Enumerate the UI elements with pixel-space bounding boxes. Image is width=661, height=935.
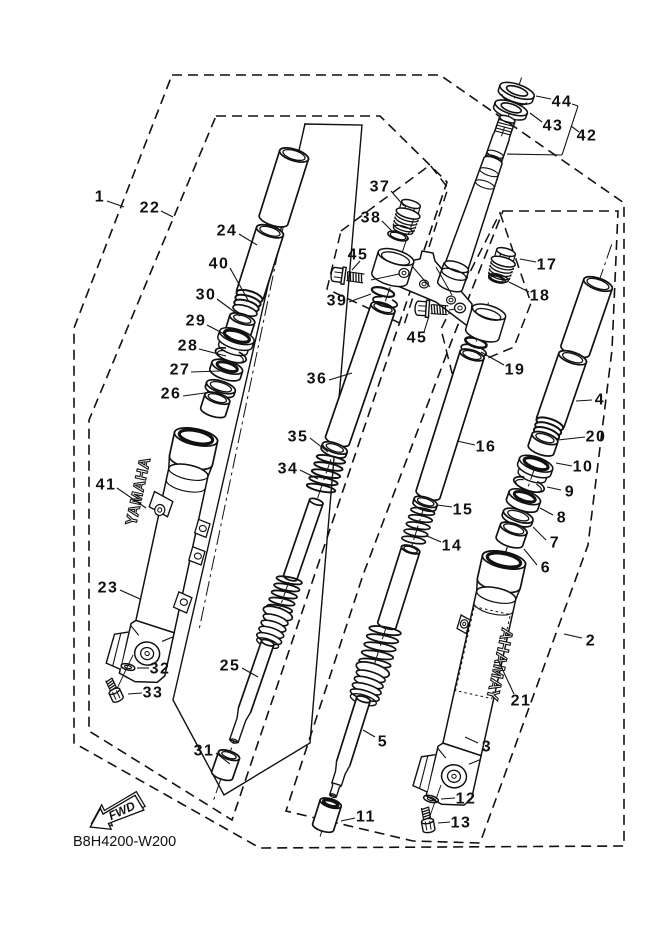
svg-text:7: 7 bbox=[550, 535, 560, 552]
svg-text:14: 14 bbox=[442, 538, 463, 555]
svg-text:24: 24 bbox=[217, 223, 238, 240]
svg-text:4: 4 bbox=[595, 392, 605, 409]
svg-text:26: 26 bbox=[161, 386, 182, 403]
svg-text:22: 22 bbox=[140, 200, 161, 217]
svg-text:42: 42 bbox=[577, 128, 598, 145]
svg-text:32: 32 bbox=[150, 661, 171, 678]
svg-text:36: 36 bbox=[307, 371, 328, 388]
svg-text:10: 10 bbox=[573, 459, 594, 476]
svg-text:25: 25 bbox=[220, 658, 241, 675]
svg-text:43: 43 bbox=[543, 118, 564, 135]
svg-text:40: 40 bbox=[209, 256, 230, 273]
svg-text:2: 2 bbox=[586, 633, 596, 650]
svg-text:20: 20 bbox=[586, 429, 607, 446]
svg-text:44: 44 bbox=[552, 94, 573, 111]
svg-text:38: 38 bbox=[361, 210, 382, 227]
svg-text:8: 8 bbox=[557, 510, 567, 527]
svg-text:29: 29 bbox=[186, 313, 207, 330]
svg-text:39: 39 bbox=[327, 293, 348, 310]
svg-text:33: 33 bbox=[143, 685, 164, 702]
svg-text:6: 6 bbox=[541, 560, 551, 577]
svg-text:15: 15 bbox=[453, 502, 474, 519]
svg-text:30: 30 bbox=[196, 287, 217, 304]
svg-text:27: 27 bbox=[170, 362, 191, 379]
svg-text:16: 16 bbox=[476, 439, 497, 456]
svg-text:35: 35 bbox=[288, 429, 309, 446]
svg-text:45: 45 bbox=[348, 247, 369, 264]
svg-text:28: 28 bbox=[178, 338, 199, 355]
svg-text:5: 5 bbox=[378, 734, 388, 751]
svg-text:13: 13 bbox=[451, 815, 472, 832]
svg-text:37: 37 bbox=[370, 179, 391, 196]
svg-text:3: 3 bbox=[482, 739, 492, 756]
svg-text:23: 23 bbox=[98, 580, 119, 597]
svg-text:12: 12 bbox=[456, 791, 477, 808]
svg-text:B8H4200-W200: B8H4200-W200 bbox=[73, 834, 176, 850]
svg-text:1: 1 bbox=[95, 189, 105, 206]
svg-text:17: 17 bbox=[537, 257, 558, 274]
svg-text:9: 9 bbox=[565, 484, 575, 501]
svg-text:41: 41 bbox=[96, 477, 117, 494]
svg-text:31: 31 bbox=[194, 743, 215, 760]
svg-text:18: 18 bbox=[530, 288, 551, 305]
svg-text:45: 45 bbox=[407, 330, 428, 347]
svg-text:19: 19 bbox=[505, 362, 526, 379]
svg-text:21: 21 bbox=[511, 693, 532, 710]
svg-text:11: 11 bbox=[356, 809, 376, 826]
svg-text:34: 34 bbox=[278, 461, 299, 478]
